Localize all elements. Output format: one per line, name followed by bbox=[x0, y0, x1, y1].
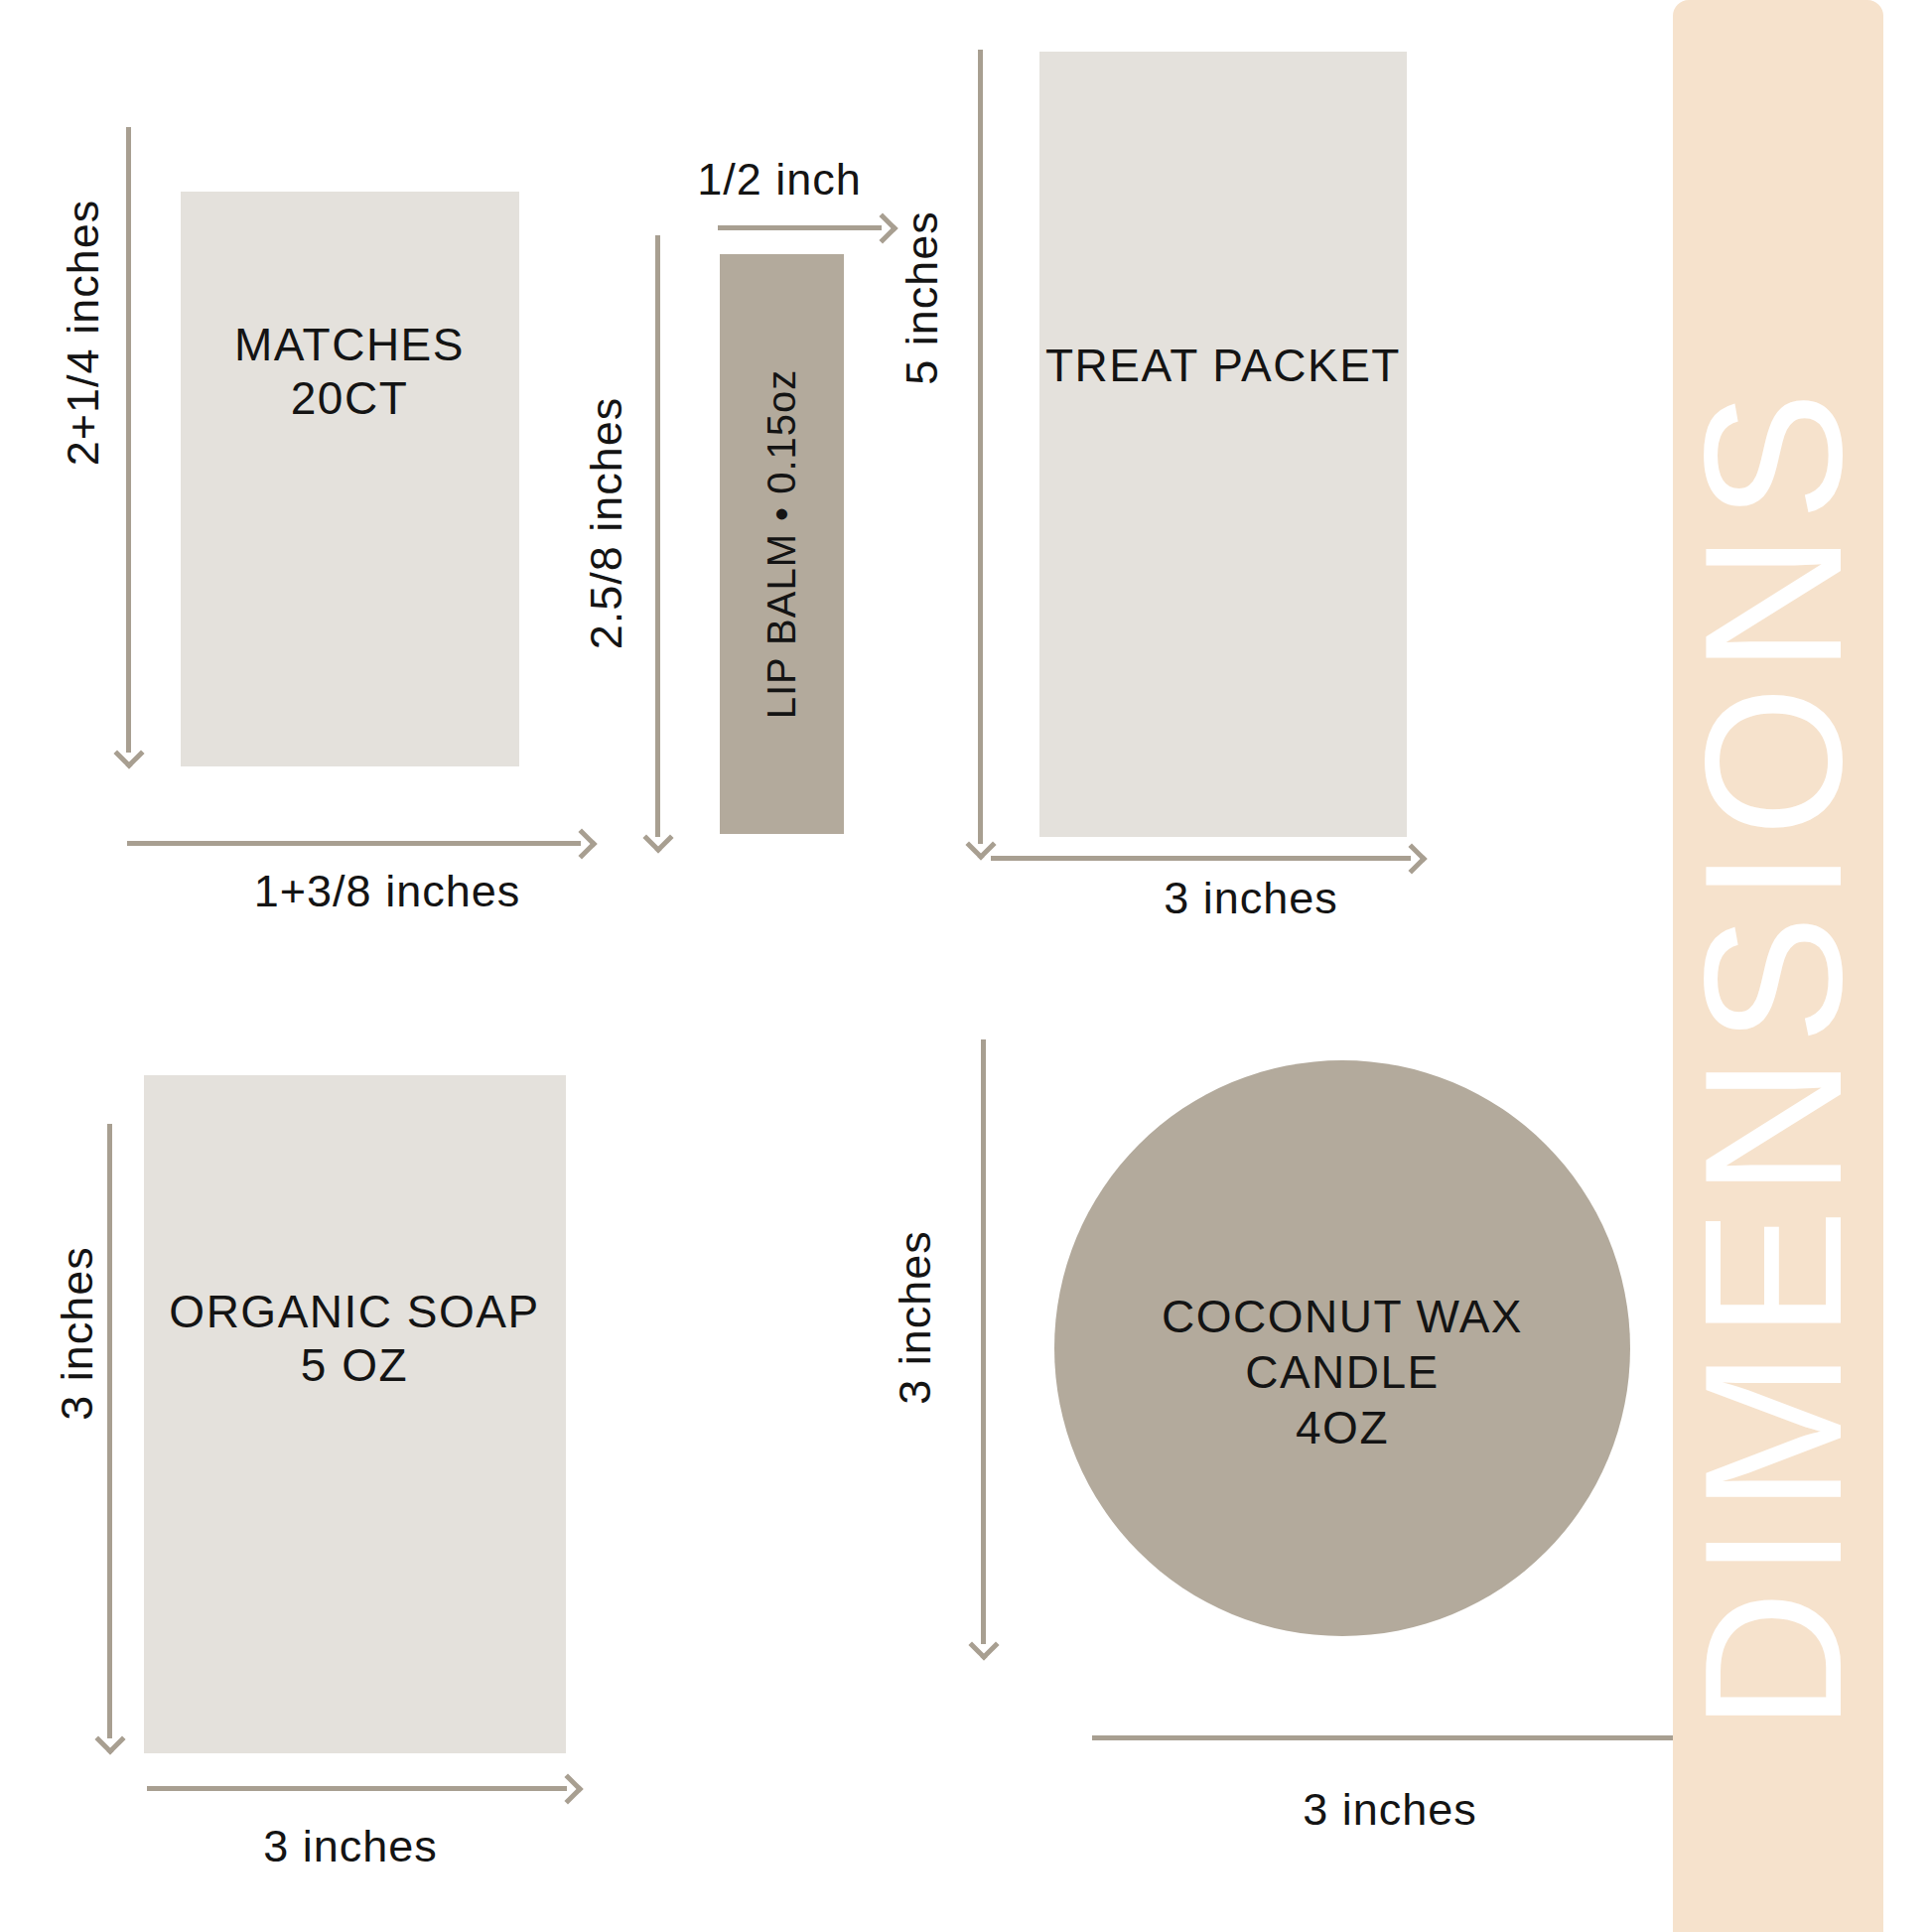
dimensions-infographic: MATCHES 20CT 2+1/4 inches 1+3/8 inches L… bbox=[0, 0, 1932, 1932]
treat-packet-width-arrow bbox=[991, 856, 1411, 861]
treat-packet-width-label: 3 inches bbox=[1164, 873, 1338, 924]
matches-label-line2: 20CT bbox=[234, 371, 465, 425]
organic-soap-width-label: 3 inches bbox=[263, 1821, 438, 1872]
lip-balm-height-arrow bbox=[655, 235, 660, 837]
organic-soap-height-label: 3 inches bbox=[52, 1246, 103, 1421]
candle-height-arrow bbox=[981, 1039, 986, 1644]
candle-width-label: 3 inches bbox=[1303, 1784, 1477, 1836]
candle-label: COCONUT WAX CANDLE 4OZ bbox=[1162, 1289, 1523, 1455]
organic-soap-label-line2: 5 OZ bbox=[169, 1338, 539, 1392]
organic-soap-height-arrow bbox=[107, 1124, 112, 1738]
treat-packet-height-label: 5 inches bbox=[897, 210, 948, 385]
treat-packet-label: TREAT PACKET bbox=[1045, 339, 1401, 392]
lip-balm-width-label: 1/2 inch bbox=[697, 154, 862, 206]
candle-width-line bbox=[1092, 1735, 1674, 1740]
treat-packet-height-arrow bbox=[978, 50, 983, 844]
matches-box bbox=[181, 192, 519, 766]
organic-soap-label-line1: ORGANIC SOAP bbox=[169, 1285, 539, 1338]
treat-packet-box bbox=[1039, 52, 1407, 837]
matches-width-arrow bbox=[127, 841, 581, 846]
lip-balm-height-label: 2.5/8 inches bbox=[581, 397, 632, 650]
matches-width-label: 1+3/8 inches bbox=[254, 866, 520, 917]
organic-soap-width-arrow bbox=[147, 1786, 567, 1791]
lip-balm-width-arrow bbox=[718, 225, 882, 230]
dimensions-banner-label: DIMENSIONS bbox=[1662, 379, 1885, 1730]
matches-label: MATCHES 20CT bbox=[234, 318, 465, 425]
candle-label-line2: CANDLE bbox=[1162, 1344, 1523, 1400]
lip-balm-label: LIP BALM • 0.15oz bbox=[759, 369, 804, 720]
organic-soap-box bbox=[144, 1075, 566, 1753]
organic-soap-label: ORGANIC SOAP 5 OZ bbox=[169, 1285, 539, 1392]
matches-height-label: 2+1/4 inches bbox=[58, 200, 109, 466]
matches-height-arrow bbox=[126, 127, 131, 753]
candle-label-line3: 4OZ bbox=[1162, 1400, 1523, 1455]
candle-height-label: 3 inches bbox=[890, 1230, 941, 1405]
matches-label-line1: MATCHES bbox=[234, 318, 465, 371]
candle-label-line1: COCONUT WAX bbox=[1162, 1289, 1523, 1344]
